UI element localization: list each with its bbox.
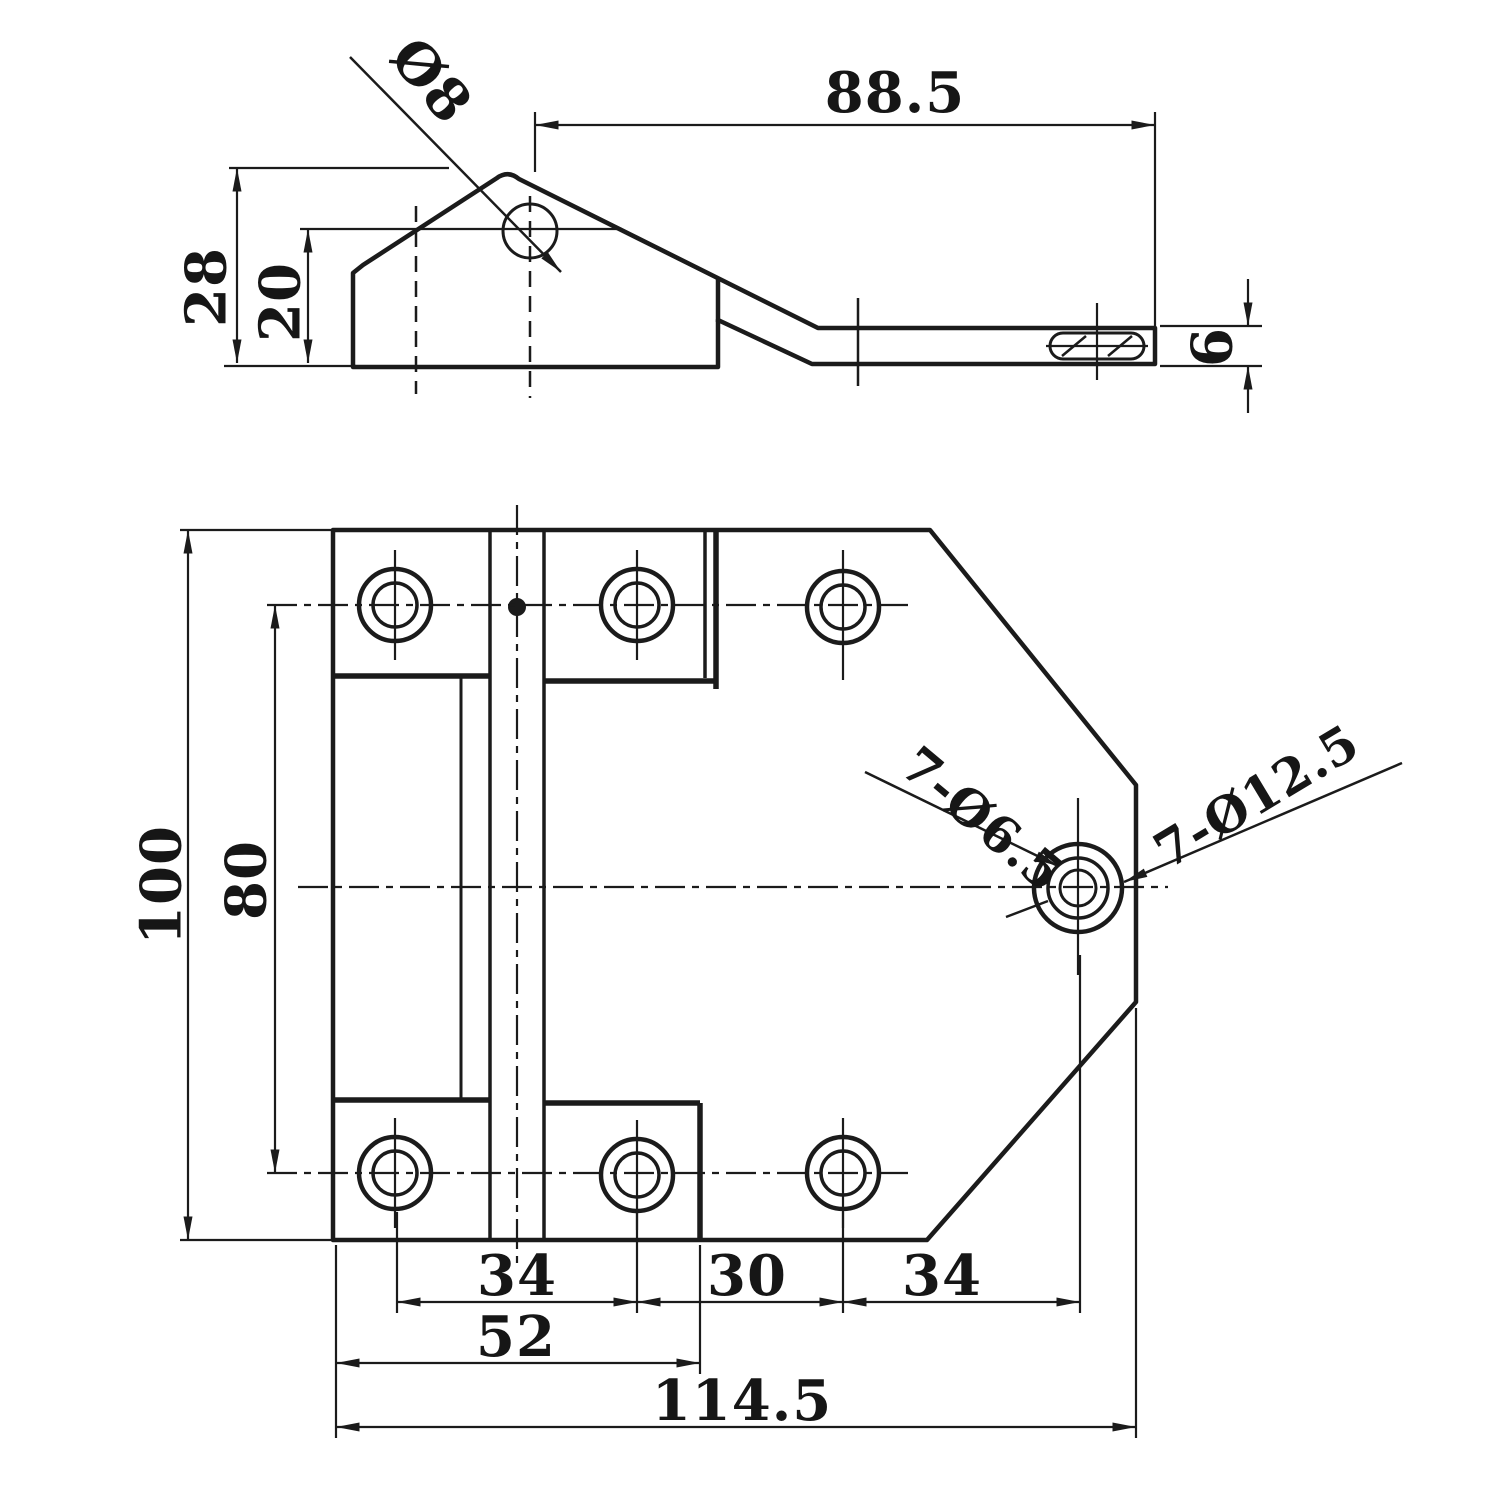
dim-hole-rows: 80 <box>214 840 280 920</box>
callout-through-holes: 7-Ø6.5 <box>890 735 1075 904</box>
dim-pitch-left: 34 <box>477 1243 557 1309</box>
side-profile-view: 88.5 28 20 6 Ø8 <box>174 25 1262 413</box>
screw-hole-3 <box>807 550 879 680</box>
pin-dot <box>508 598 526 616</box>
dim-left-section: 52 <box>476 1304 556 1370</box>
dim-arm-thickness: 6 <box>1180 327 1246 367</box>
dim-plate-height: 100 <box>129 825 195 945</box>
dim-pitch-right: 34 <box>902 1243 982 1309</box>
drawing-canvas: 88.5 28 20 6 Ø8 <box>0 0 1500 1500</box>
technical-drawing: 88.5 28 20 6 Ø8 <box>0 0 1500 1500</box>
side-outline <box>353 174 1155 367</box>
dim-overall-width: 114.5 <box>652 1368 832 1434</box>
callout-hole-dia: Ø8 <box>377 25 485 136</box>
dim-total-height: 28 <box>174 247 240 327</box>
dim-length: 88.5 <box>825 60 965 126</box>
dim-hole-height: 20 <box>248 262 314 342</box>
callout-counterbores: 7-Ø12.5 <box>1144 712 1370 880</box>
dim-pitch-middle: 30 <box>707 1243 787 1309</box>
plan-view: 7-Ø6.5 7-Ø12.5 100 80 34 30 34 52 114.5 <box>129 505 1402 1438</box>
